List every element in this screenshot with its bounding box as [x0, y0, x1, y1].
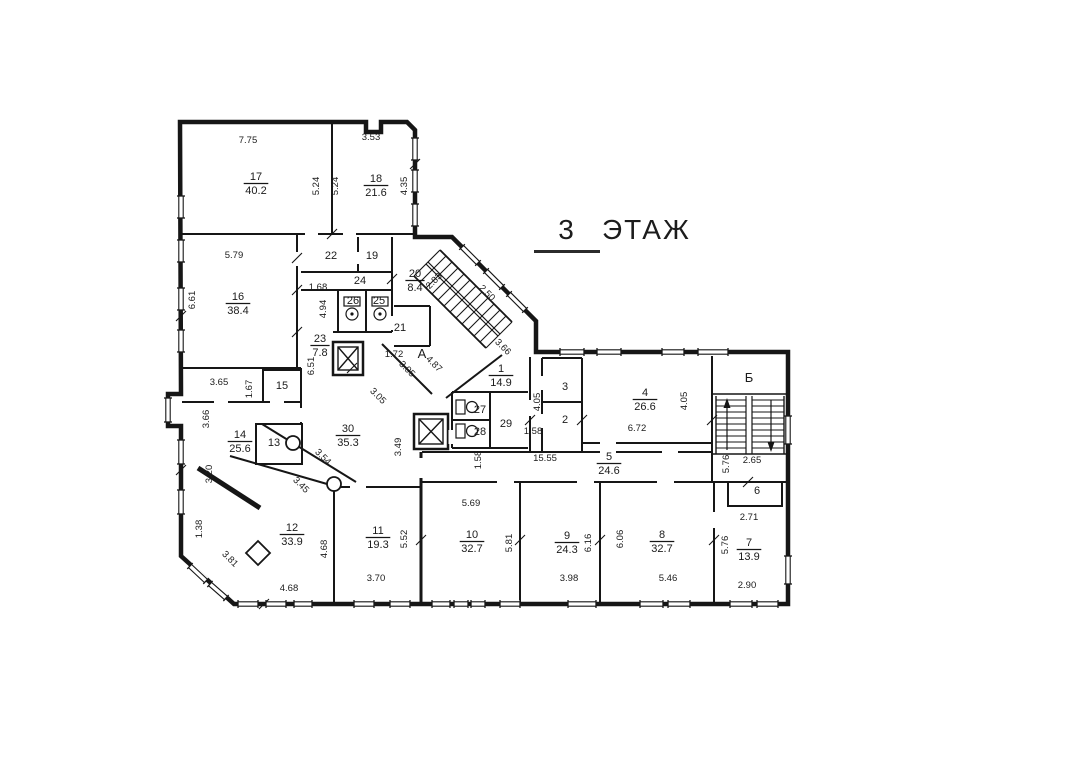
room-number: 28: [474, 426, 486, 438]
room-number: 20: [409, 268, 421, 280]
room-number: 9: [564, 530, 570, 542]
floor-number: 3: [534, 214, 600, 253]
dimension-label: 3.70: [367, 573, 386, 584]
room-number: 4: [642, 387, 648, 399]
dimension-label: 4.68: [280, 583, 299, 594]
room-area: 14.9: [490, 377, 511, 389]
room-area: 24.3: [556, 544, 577, 556]
room-number: 29: [500, 418, 512, 430]
room-number: 3: [562, 381, 568, 393]
dimension-label: 3.05: [367, 386, 388, 407]
dimension-label: 4.94: [318, 300, 329, 319]
dimension-label: 5.52: [399, 530, 410, 549]
dimension-label: 7.75: [239, 135, 258, 146]
floor-word: ЭТАЖ: [602, 214, 691, 246]
dimension-label: 4.87: [423, 354, 444, 375]
dimension-label: 1.67: [244, 380, 255, 399]
room-area: 32.7: [461, 543, 482, 555]
dimension-label: 1.58: [473, 451, 484, 470]
dimension-label: 15.55: [533, 453, 557, 464]
dimension-label: 3.81: [219, 549, 240, 570]
room-number: 16: [232, 291, 244, 303]
room-area: 33.9: [281, 536, 302, 548]
dimension-label: 1.68: [309, 282, 328, 293]
dimension-label: 5.69: [462, 498, 481, 509]
dimension-label: 5.24: [311, 177, 322, 196]
staircase-a: [414, 250, 512, 348]
room-number: 24: [354, 275, 366, 287]
room-area: 26.6: [634, 401, 655, 413]
room-number: 26: [347, 295, 359, 307]
floor-title: 3 ЭТАЖ: [534, 214, 691, 253]
room-area: 13.9: [738, 551, 759, 563]
stairwell-letter: Б: [745, 370, 754, 385]
dimension-label: 3.20: [204, 465, 215, 484]
room-number: 11: [372, 525, 383, 537]
room-area: 8.4: [407, 282, 422, 294]
dimension-label: 3.65: [210, 377, 229, 388]
stairwell-letter: А: [418, 346, 427, 361]
dimension-label: 2.90: [738, 580, 757, 591]
door-openings-layer: [214, 234, 714, 528]
room-area: 25.6: [229, 443, 250, 455]
dimension-label: 3.66: [201, 410, 212, 429]
room-number: 8: [659, 529, 665, 541]
room-number: 13: [268, 437, 280, 449]
dimension-label: 5.76: [720, 536, 731, 555]
dimension-label: 6.51: [306, 357, 317, 376]
dimension-label: 5.46: [659, 573, 678, 584]
room-number: 15: [276, 380, 288, 392]
room-number: 17: [250, 171, 262, 183]
dimension-label: 5.24: [330, 177, 341, 196]
room-area: 32.7: [651, 543, 672, 555]
room-number: 2: [562, 414, 568, 426]
room-number: 18: [370, 173, 382, 185]
dimension-label: 6.72: [628, 423, 647, 434]
dimension-label: 2.65: [743, 455, 762, 466]
room-number: 1: [498, 363, 504, 375]
room-number: 10: [466, 529, 478, 541]
floor-plan-canvas: 1740.21821.61638.42219242625208.421237.8…: [0, 0, 1072, 768]
room-number: 12: [286, 522, 298, 534]
dimension-label: 5.76: [721, 455, 732, 474]
dimension-label: 1.58: [524, 426, 543, 437]
dimension-label: 3.49: [393, 438, 404, 457]
dimension-label: 1.72: [385, 349, 404, 360]
dimension-label: 3.66: [492, 337, 513, 358]
dimension-label: 6.16: [583, 534, 594, 553]
room-number: 21: [394, 322, 406, 334]
floorplan-page: 1740.21821.61638.42219242625208.421237.8…: [0, 0, 1072, 768]
room-area: 24.6: [598, 465, 619, 477]
room-area: 38.4: [227, 305, 248, 317]
dimension-label: 1.38: [194, 520, 205, 539]
room-number: 25: [373, 295, 385, 307]
room-number: 7: [746, 537, 752, 549]
dimension-label: 3.54: [312, 447, 333, 468]
room-number: 5: [606, 451, 612, 463]
dimension-label: 4.35: [399, 177, 410, 196]
room-area: 21.6: [365, 187, 386, 199]
room-area: 19.3: [367, 539, 388, 551]
dimension-label: 6.61: [187, 291, 198, 310]
dimension-label: 3.53: [362, 132, 381, 143]
room-area: 40.2: [245, 185, 266, 197]
room-number: 30: [342, 423, 354, 435]
dimension-label: 6.06: [615, 530, 626, 549]
dimension-label: 2.71: [740, 512, 759, 523]
room-number: 14: [234, 429, 246, 441]
dimension-label: 5.81: [504, 534, 515, 553]
room-area: 35.3: [337, 437, 358, 449]
room-number: 22: [325, 250, 337, 262]
dimension-label: 4.68: [319, 540, 330, 559]
dimension-label: 2.50: [476, 283, 497, 304]
dimension-label: 4.05: [532, 393, 543, 412]
labels-layer: 1740.21821.61638.42219242625208.421237.8…: [187, 132, 761, 594]
room-number: 6: [754, 485, 760, 497]
room-number: 23: [314, 333, 326, 345]
room-number: 27: [474, 404, 486, 416]
dimension-label: 4.05: [679, 392, 690, 411]
dimension-label: 3.98: [560, 573, 579, 584]
room-number: 19: [366, 250, 378, 262]
staircase-b: [712, 394, 788, 454]
dimension-label: 5.79: [225, 250, 244, 261]
